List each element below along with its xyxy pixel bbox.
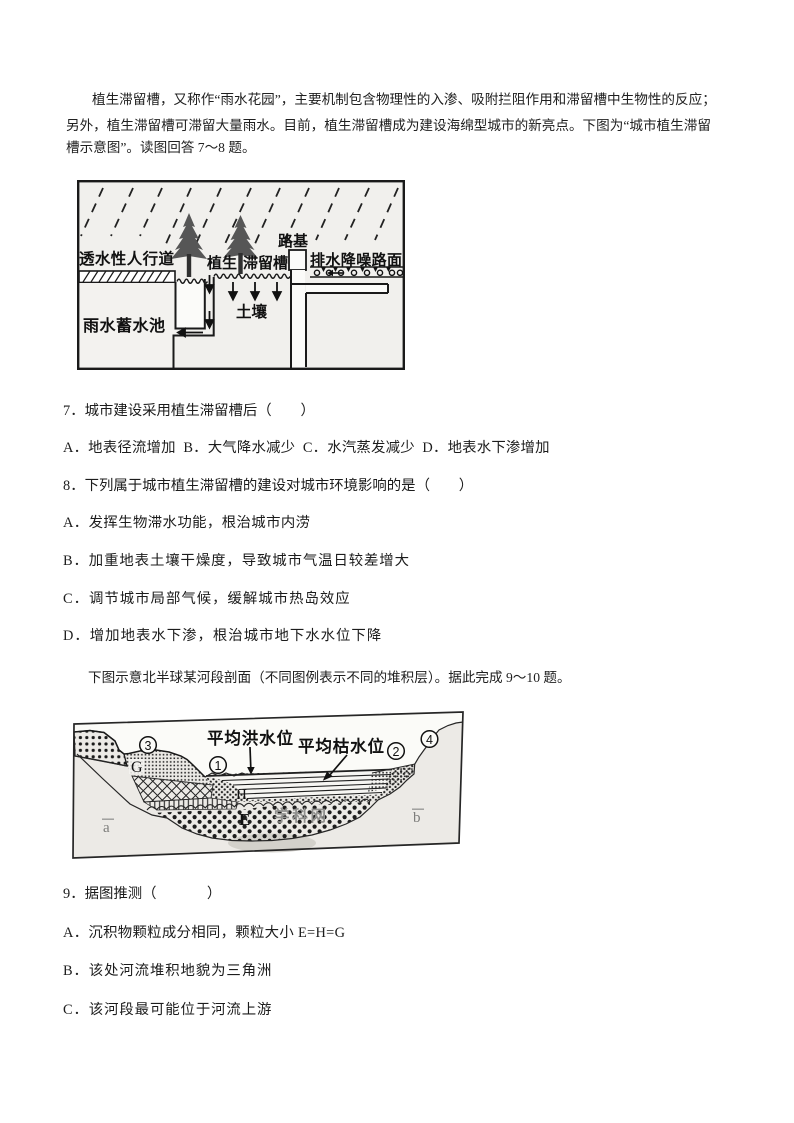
svg-text:平均枯水位: 平均枯水位 — [298, 736, 385, 756]
svg-text:b: b — [413, 810, 421, 826]
svg-text:4: 4 — [426, 733, 433, 747]
svg-text:a: a — [103, 820, 110, 836]
svg-text:1: 1 — [215, 759, 222, 773]
svg-text:E: E — [239, 810, 250, 829]
svg-text:土壤: 土壤 — [236, 302, 268, 321]
svg-text:H: H — [236, 787, 247, 803]
svg-text:G: G — [131, 759, 143, 776]
svg-text:雨水蓄水池: 雨水蓄水池 — [83, 316, 165, 335]
svg-text:2: 2 — [393, 745, 400, 759]
svg-text:平均洪水位: 平均洪水位 — [207, 728, 294, 748]
svg-text:植生: 植生 — [207, 254, 237, 272]
svg-text:学科网: 学科网 — [274, 806, 326, 825]
svg-text:透水性人行道: 透水性人行道 — [79, 249, 174, 268]
svg-text:滞留槽: 滞留槽 — [243, 254, 288, 272]
svg-text:路基: 路基 — [278, 232, 309, 250]
svg-text:3: 3 — [145, 739, 152, 753]
